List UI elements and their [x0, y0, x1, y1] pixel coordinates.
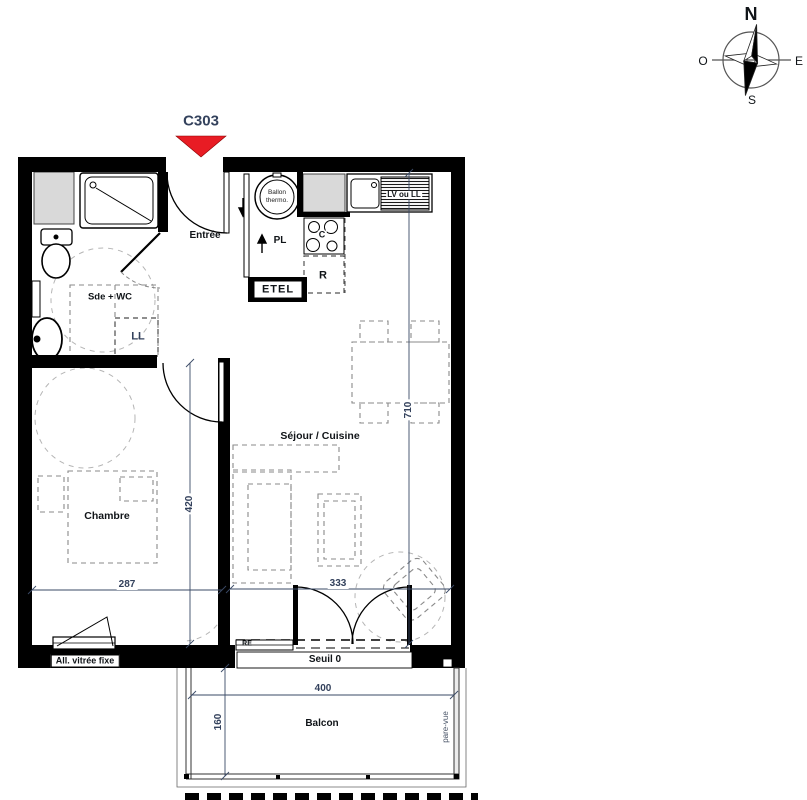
- dim-bedroom-width: 287: [117, 580, 138, 590]
- closet-label: PL: [274, 236, 287, 246]
- compass-rose: [712, 20, 791, 99]
- dimension-lines: [28, 169, 458, 780]
- compass-north-label: N: [745, 5, 758, 23]
- furniture: [38, 218, 449, 624]
- coffee-table: [318, 494, 361, 566]
- dim-living-width: 333: [328, 579, 349, 589]
- glazing-tag-label: RE: [242, 641, 252, 648]
- entrance-door: [167, 172, 229, 233]
- room-label-bedroom: Chambre: [84, 511, 130, 522]
- bathroom-door: [121, 233, 160, 288]
- dim-bedroom-depth: 420: [185, 494, 195, 515]
- toilet: [41, 229, 72, 278]
- compass-west-label: O: [698, 55, 707, 67]
- cooktop-label: C: [318, 231, 327, 240]
- fridge-label: R: [319, 271, 327, 282]
- sink: [351, 179, 379, 208]
- washer-label: LL: [131, 332, 144, 343]
- shower-tray: [80, 173, 158, 228]
- room-label-living: Séjour / Cuisine: [280, 431, 359, 442]
- fixed-glazing-note: All. vitrée fixe: [51, 655, 120, 668]
- water-heater-label-2: thermo.: [266, 198, 288, 205]
- dining-table: [352, 321, 449, 423]
- sofa: [233, 445, 339, 583]
- room-label-bathroom: Sde + WC: [88, 292, 132, 302]
- privacy-screen-note: pare-vue: [442, 711, 450, 743]
- drain-box: [443, 659, 452, 667]
- closet-sliding-door: [244, 174, 249, 277]
- floor-plan: C303 N O E S Entrée Sde + WC Chambre Séj…: [0, 0, 807, 800]
- room-label-balcony: Balcon: [305, 719, 338, 729]
- dim-balcony-width: 400: [313, 684, 334, 694]
- radiator: [32, 281, 40, 317]
- water-heater-label-1: Ballon: [268, 190, 286, 197]
- unit-label: C303: [183, 114, 219, 129]
- entry-marker-triangle: [176, 136, 226, 157]
- compass-south-label: S: [748, 94, 756, 106]
- walls: [18, 157, 465, 668]
- balcony-french-door: [236, 587, 409, 648]
- room-label-entree: Entrée: [189, 231, 220, 241]
- etel-label: ETEL: [262, 285, 294, 296]
- accessibility-turning-circles: [35, 248, 445, 642]
- bedroom-door: [163, 362, 224, 422]
- dishwasher-washer-label: LV ou LL: [386, 191, 422, 199]
- washbasin: [32, 318, 62, 360]
- bedroom-window: [53, 617, 115, 649]
- dim-apartment-depth: 710: [404, 400, 414, 421]
- compass-east-label: E: [795, 55, 803, 67]
- dim-balcony-depth: 160: [214, 712, 224, 733]
- threshold-note: Seuil 0: [309, 655, 341, 665]
